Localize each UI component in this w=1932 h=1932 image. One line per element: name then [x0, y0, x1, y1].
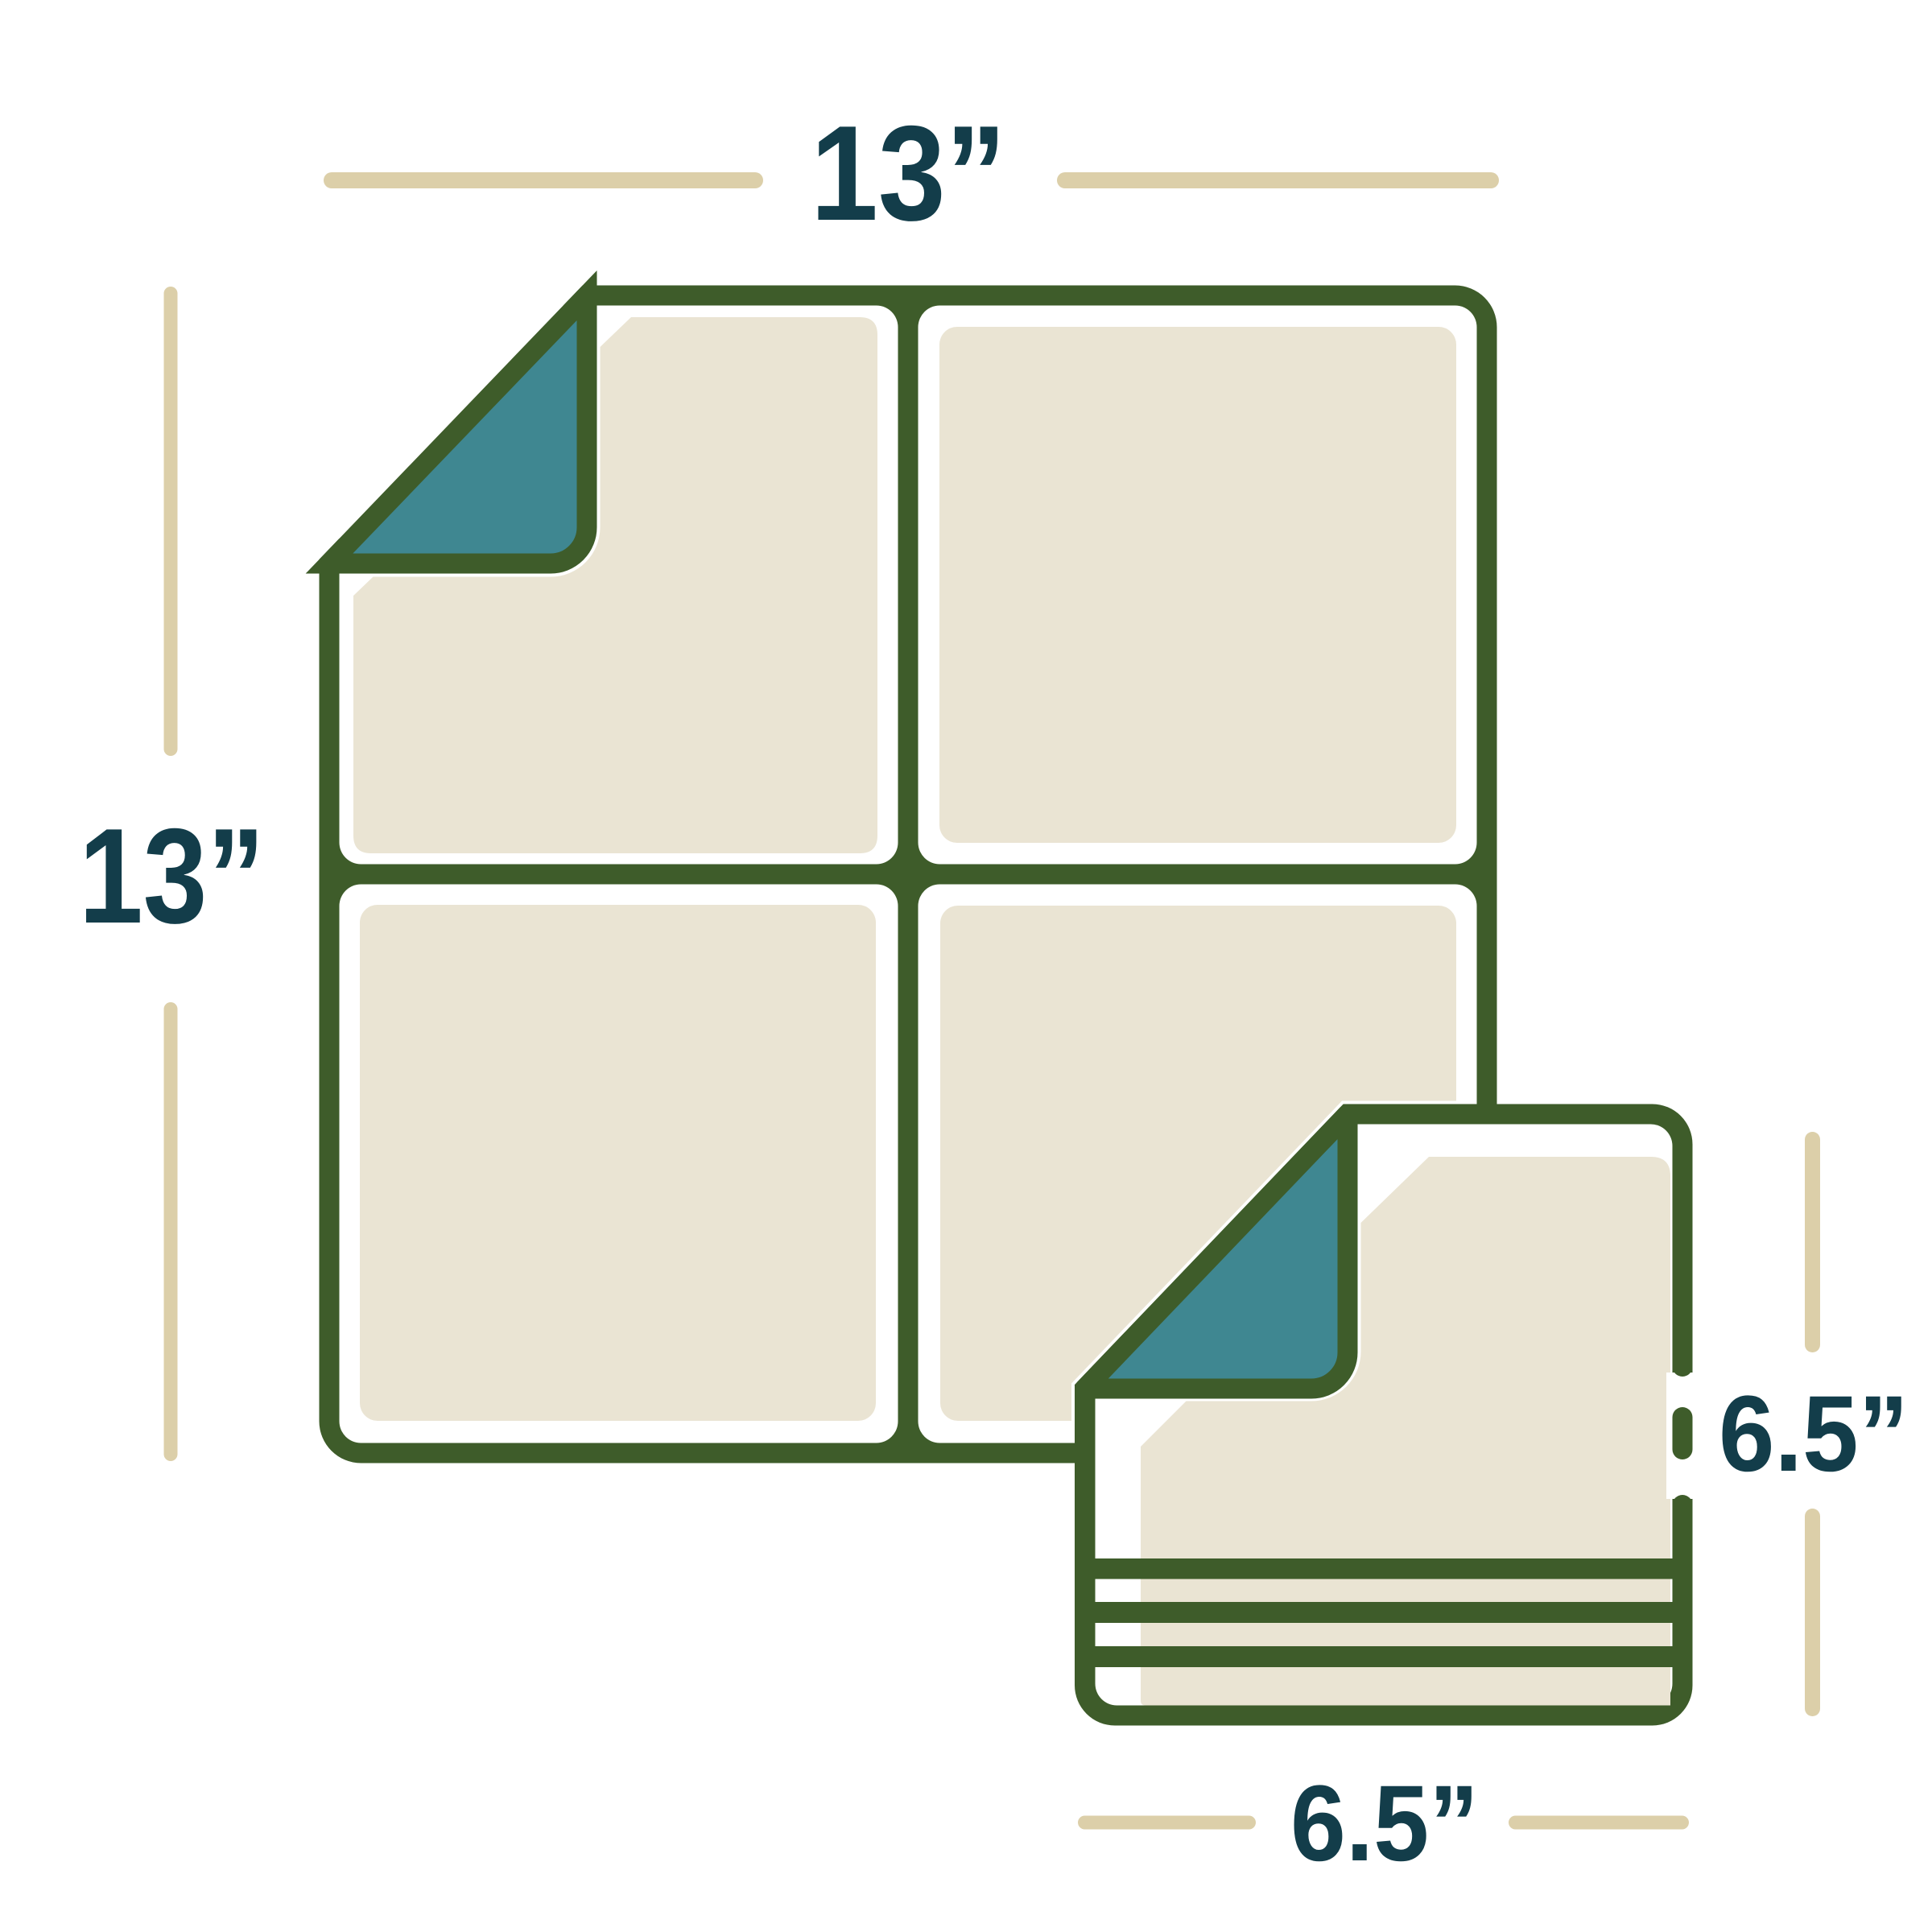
svg-text:13”: 13” [811, 97, 1006, 249]
svg-text:13”: 13” [79, 800, 265, 952]
svg-text:6.5”: 6.5” [1290, 1764, 1479, 1884]
svg-text:6.5”: 6.5” [1719, 1374, 1909, 1494]
